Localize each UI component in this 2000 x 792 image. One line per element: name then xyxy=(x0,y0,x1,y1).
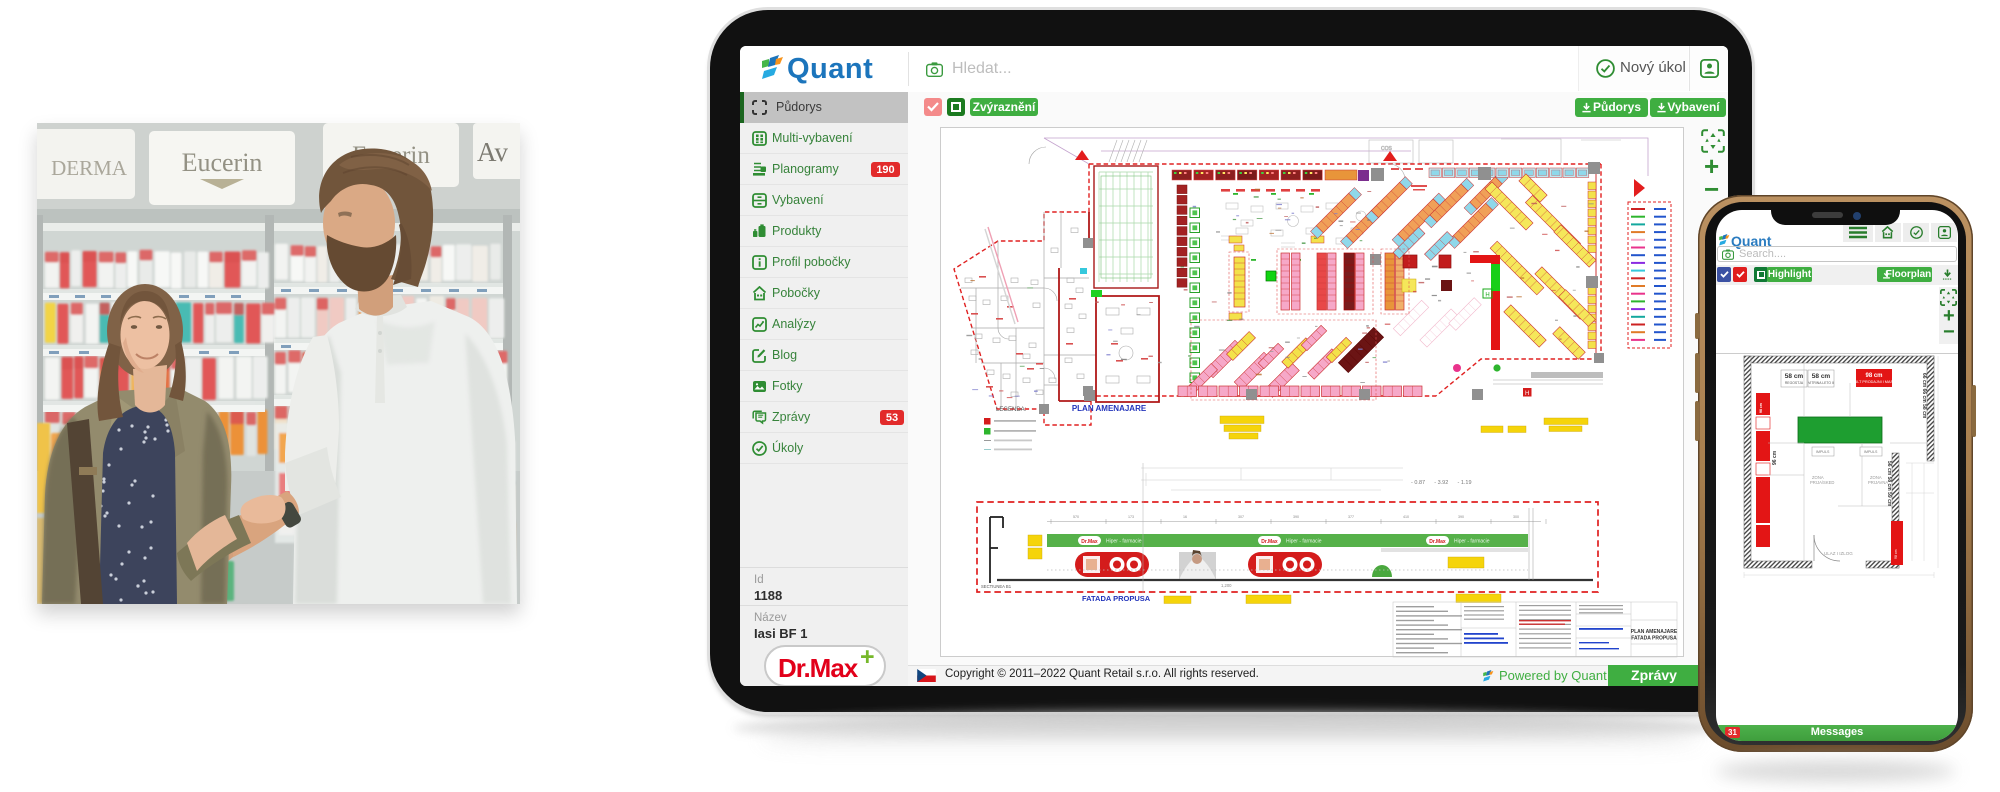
svg-text:FATADA PROPUSA: FATADA PROPUSA xyxy=(1631,636,1677,642)
svg-text:98 cm: 98 cm xyxy=(1759,403,1763,413)
svg-text:- 0.87 - 3.92 - 1.19: - 0.87 - 3.92 - 1.19 xyxy=(1411,480,1472,486)
svg-text:IMPULS: IMPULS xyxy=(1816,450,1830,454)
svg-text:58 cm: 58 cm xyxy=(1785,373,1804,380)
svg-text:PLAN AMENAJARE: PLAN AMENAJARE xyxy=(1072,404,1147,413)
svg-text:96 cm: 96 cm xyxy=(1772,450,1778,465)
svg-text:98 cm: 98 cm xyxy=(1894,549,1898,559)
svg-text:H: H xyxy=(1525,391,1529,397)
svg-text:410: 410 xyxy=(1403,515,1409,519)
svg-text:Hiper - farmacie: Hiper - farmacie xyxy=(1286,539,1322,545)
svg-text:173: 173 xyxy=(1128,515,1134,519)
svg-text:FATADA PROPUSA: FATADA PROPUSA xyxy=(1082,594,1151,603)
svg-text:56 cm 58 cm 59 cm: 56 cm 58 cm 59 cm xyxy=(1886,461,1892,507)
svg-text:Dr.Max: Dr.Max xyxy=(1261,539,1278,545)
svg-text:PRIJA/SKED: PRIJA/SKED xyxy=(1810,480,1834,485)
svg-text:98 cm: 98 cm xyxy=(1865,373,1882,379)
svg-text:390: 390 xyxy=(1458,515,1464,519)
svg-text:IMPULS: IMPULS xyxy=(1864,450,1878,454)
svg-text:570: 570 xyxy=(1073,515,1079,519)
svg-text:PLAN AMENAJARE: PLAN AMENAJARE xyxy=(1631,629,1678,635)
svg-text:H: H xyxy=(1485,293,1489,299)
svg-text:Hiper - farmacie: Hiper - farmacie xyxy=(1106,539,1142,545)
svg-text:LEGENDA:: LEGENDA: xyxy=(996,407,1027,413)
svg-text:377: 377 xyxy=(1348,515,1354,519)
svg-text:PULT PRODAJNI I MASO: PULT PRODAJNI I MASO xyxy=(1852,380,1896,384)
svg-text:COS: COS xyxy=(1381,146,1393,152)
svg-text:SECTIUNEA B1: SECTIUNEA B1 xyxy=(981,584,1012,589)
svg-text:PRIJAVNA: PRIJAVNA xyxy=(1868,480,1888,485)
svg-text:390: 390 xyxy=(1293,515,1299,519)
svg-text:1,200: 1,200 xyxy=(1221,583,1232,588)
svg-text:16: 16 xyxy=(1183,515,1187,519)
svg-text:58 cm: 58 cm xyxy=(1812,373,1831,380)
svg-text:Dr.Max: Dr.Max xyxy=(1429,539,1446,545)
svg-text:ULAZ I IZLOG: ULAZ I IZLOG xyxy=(1824,551,1853,556)
svg-text:66 cm 66 cm 58 cm: 66 cm 66 cm 58 cm xyxy=(1921,373,1927,419)
svg-text:Hiper - farmacie: Hiper - farmacie xyxy=(1454,539,1490,545)
svg-text:VITRINA LETO II: VITRINA LETO II xyxy=(1808,381,1834,385)
svg-text:REGOSTJA: REGOSTJA xyxy=(1785,381,1804,385)
svg-text:Dr.Max: Dr.Max xyxy=(1081,539,1098,545)
svg-text:307: 307 xyxy=(1238,515,1244,519)
svg-text:300: 300 xyxy=(1513,515,1519,519)
